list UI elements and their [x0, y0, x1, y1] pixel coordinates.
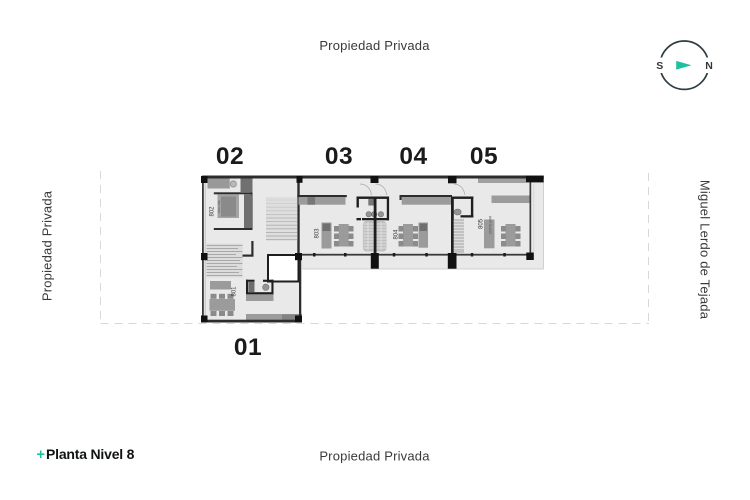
svg-text:03: 03 [325, 143, 353, 170]
svg-text:Miguel Lerdo de Tejada: Miguel Lerdo de Tejada [698, 180, 713, 320]
svg-text:Propiedad Privada: Propiedad Privada [319, 449, 430, 464]
svg-text:05: 05 [470, 143, 498, 170]
svg-text:Propiedad Privada: Propiedad Privada [319, 38, 430, 53]
svg-text:Propiedad Privada: Propiedad Privada [40, 190, 55, 301]
svg-text:+: + [37, 447, 45, 463]
svg-text:801: 801 [232, 286, 238, 297]
svg-text:KING SIZE: KING SIZE [217, 200, 221, 213]
svg-text:803: 803 [315, 228, 321, 239]
svg-text:805: 805 [479, 218, 485, 229]
svg-text:COFFE BAR: COFFE BAR [489, 215, 493, 234]
svg-text:802: 802 [210, 206, 216, 217]
svg-text:01: 01 [234, 334, 262, 361]
svg-text:N: N [705, 60, 713, 72]
svg-text:04: 04 [399, 143, 427, 170]
svg-text:02: 02 [216, 143, 244, 170]
svg-text:804: 804 [394, 229, 400, 240]
svg-text:Planta Nivel 8: Planta Nivel 8 [46, 446, 135, 462]
svg-text:S: S [656, 60, 663, 72]
